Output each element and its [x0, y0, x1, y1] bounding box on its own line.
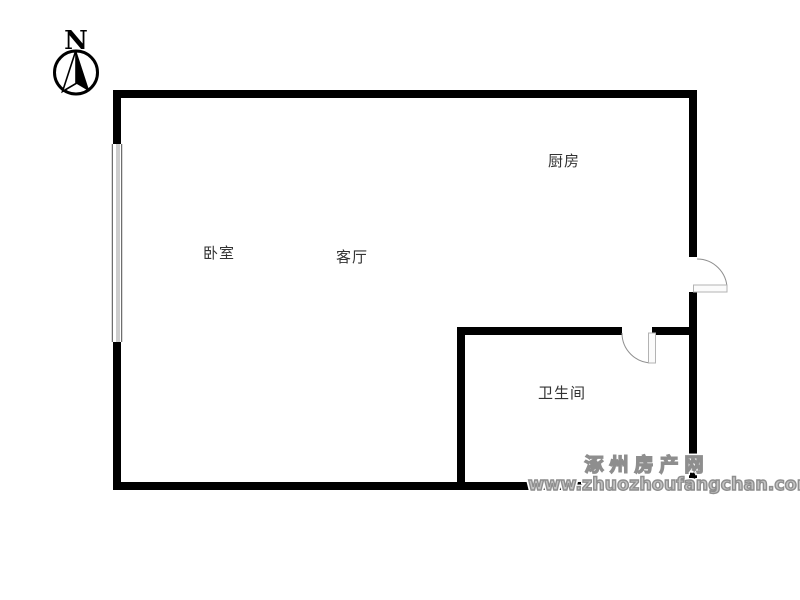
watermark: 涿州房产网 www.zhuozhoufangchan.com — [528, 456, 766, 494]
floorplan-drawing: N — [0, 0, 800, 600]
room-label-bedroom: 卧室 — [203, 244, 235, 262]
walls — [113, 90, 697, 490]
wall-bathroom-top-left — [457, 327, 622, 335]
door-bathroom — [622, 333, 656, 363]
wall-bathroom-top-right — [652, 327, 697, 335]
floorplan-canvas: N — [0, 0, 800, 600]
window-left-wall — [112, 144, 123, 342]
room-labels: 卧室 客厅 厨房 卫生间 — [203, 152, 586, 402]
door-entrance — [694, 259, 728, 292]
compass: N — [55, 26, 98, 94]
door-entrance-panel — [694, 285, 728, 292]
room-label-kitchen: 厨房 — [548, 152, 580, 170]
wall-right-upper — [689, 90, 697, 257]
compass-needle-right-icon — [76, 50, 90, 92]
watermark-site-url: www.zhuozhoufangchan.com — [528, 476, 766, 494]
room-label-living-room: 客厅 — [336, 248, 368, 266]
compass-needle-left-icon — [63, 50, 77, 92]
room-label-bathroom: 卫生间 — [538, 384, 586, 402]
wall-bathroom-left — [457, 327, 465, 490]
door-bathroom-panel — [649, 333, 656, 363]
wall-top — [113, 90, 697, 98]
door-bathroom-swing-arc — [622, 333, 652, 363]
watermark-site-name: 涿州房产网 — [528, 456, 766, 476]
